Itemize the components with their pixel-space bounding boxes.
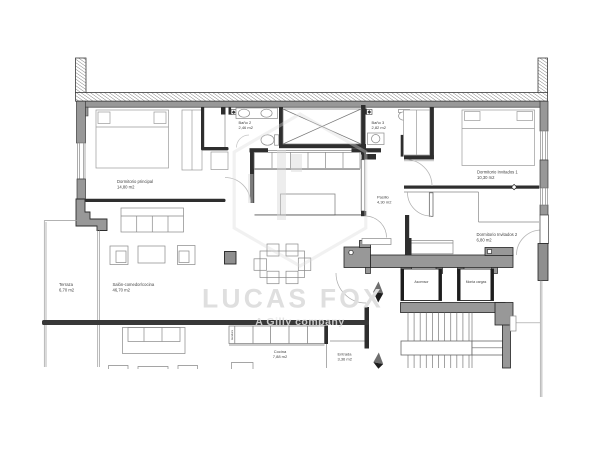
svg-text:Dormitorio Invitados 1: Dormitorio Invitados 1 (477, 170, 518, 175)
svg-text:10,30 m2: 10,30 m2 (477, 175, 495, 180)
svg-text:7,88 m2: 7,88 m2 (273, 354, 288, 359)
svg-text:Terraza: Terraza (59, 282, 74, 287)
svg-text:LUCAS FOX: LUCAS FOX (202, 284, 384, 314)
svg-text:3,36 m2: 3,36 m2 (338, 357, 353, 362)
svg-text:14,80 m2: 14,80 m2 (117, 185, 135, 190)
svg-text:4,30 m2: 4,30 m2 (377, 200, 392, 205)
svg-text:Salón-comedor/cocina: Salón-comedor/cocina (113, 282, 155, 287)
svg-text:6,70 m2: 6,70 m2 (59, 288, 75, 293)
svg-text:6,80 m2: 6,80 m2 (477, 238, 493, 243)
svg-text:2,46 m2: 2,46 m2 (239, 125, 254, 130)
svg-text:lavadora: lavadora (230, 329, 234, 340)
svg-text:Ascensor: Ascensor (414, 280, 429, 284)
svg-text:Dormitorio principal: Dormitorio principal (117, 179, 153, 184)
svg-text:46,70 m2: 46,70 m2 (113, 288, 131, 293)
svg-text:2,82 m2: 2,82 m2 (372, 125, 387, 130)
svg-text:Dormitorio Invitados 2: Dormitorio Invitados 2 (477, 232, 518, 237)
svg-text:Monta cargas: Monta cargas (466, 280, 487, 284)
svg-text:A Gilly company: A Gilly company (255, 316, 344, 328)
